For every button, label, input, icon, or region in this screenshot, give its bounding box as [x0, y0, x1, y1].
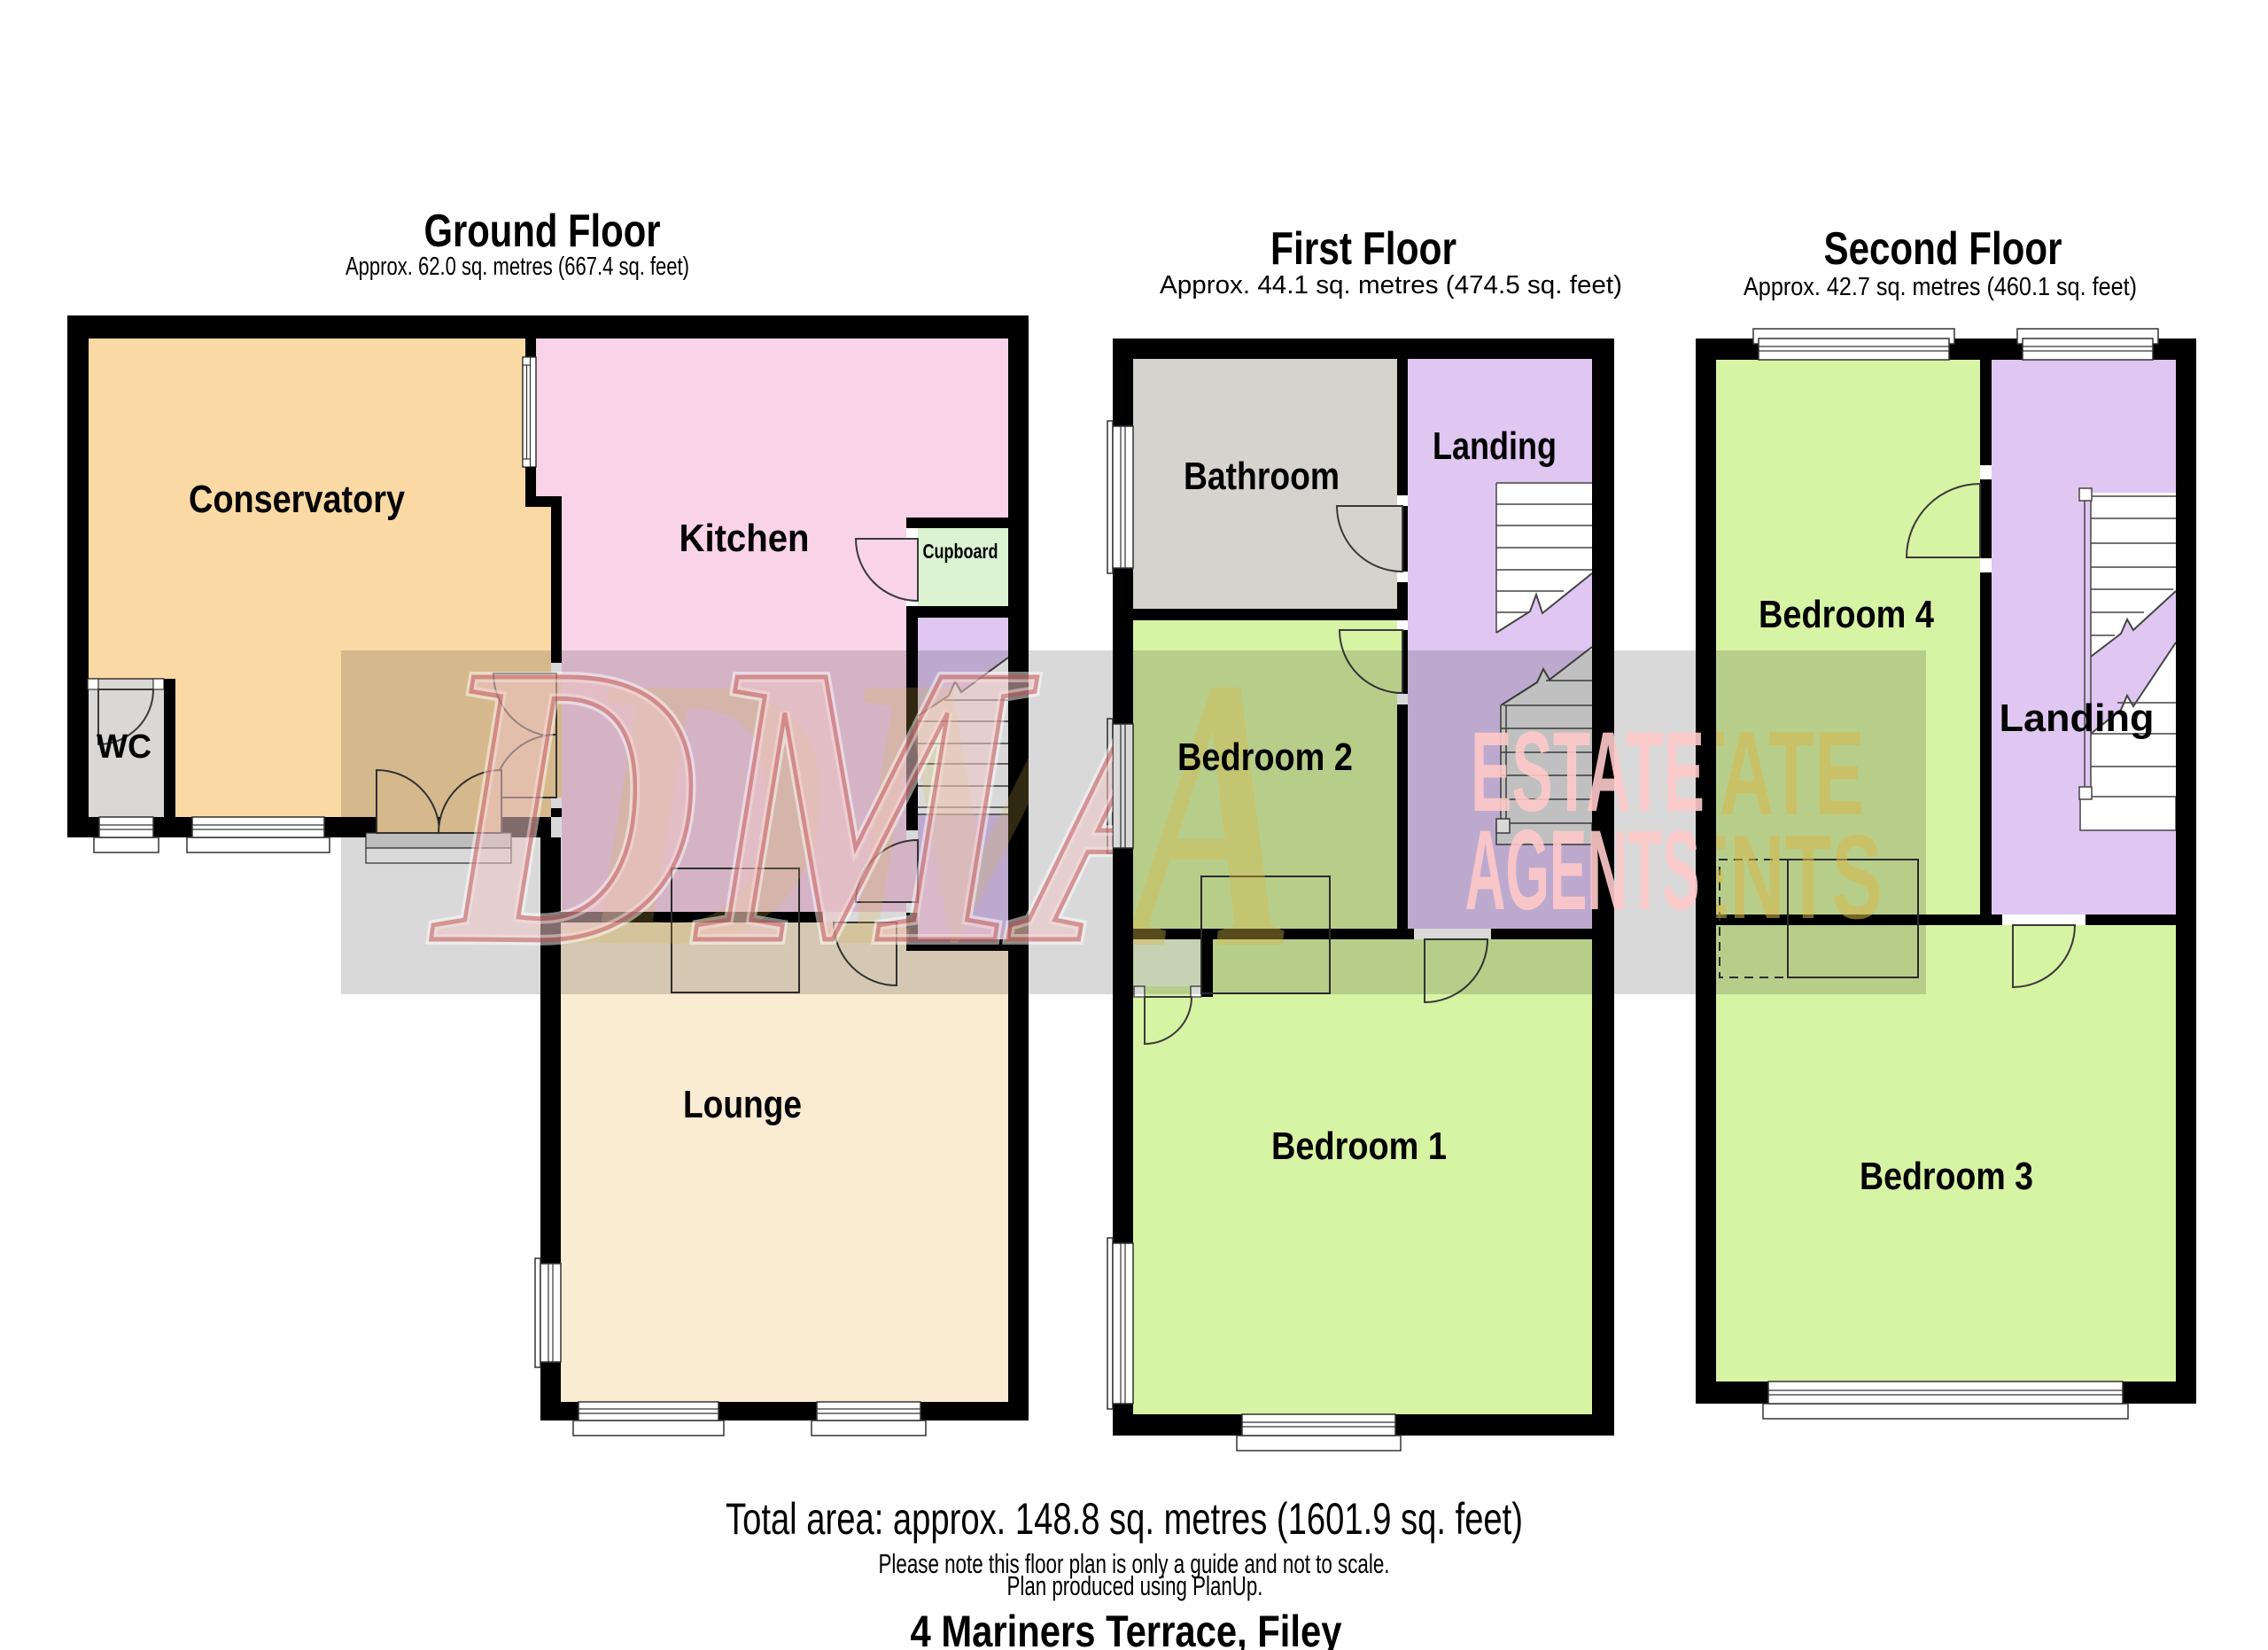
svg-text:Second Floor: Second Floor — [1824, 223, 2062, 275]
svg-text:Cupboard: Cupboard — [923, 540, 998, 563]
svg-text:Bedroom 4: Bedroom 4 — [1759, 593, 1934, 636]
svg-text:Total area: approx. 148.8 sq.: Total area: approx. 148.8 sq. metres (16… — [726, 1494, 1523, 1544]
svg-text:Conservatory: Conservatory — [189, 478, 405, 521]
svg-text:Bedroom 2: Bedroom 2 — [1177, 735, 1353, 779]
svg-text:WC: WC — [97, 728, 151, 766]
svg-text:First Floor: First Floor — [1270, 223, 1456, 275]
svg-text:Kitchen: Kitchen — [680, 517, 810, 560]
svg-text:Landing: Landing — [2000, 697, 2155, 740]
svg-text:Bedroom 1: Bedroom 1 — [1271, 1125, 1447, 1168]
svg-text:Landing: Landing — [1433, 424, 1557, 468]
svg-text:A: A — [1115, 598, 1294, 1030]
svg-text:Lounge: Lounge — [683, 1083, 802, 1126]
svg-text:Approx. 62.0 sq. metres (667.4: Approx. 62.0 sq. metres (667.4 sq. feet) — [346, 253, 689, 281]
svg-text:4 Mariners Terrace, Filey: 4 Mariners Terrace, Filey — [911, 1607, 1342, 1650]
svg-text:Bedroom 3: Bedroom 3 — [1860, 1155, 2033, 1198]
svg-text:Ground Floor: Ground Floor — [424, 206, 661, 257]
svg-text:Bathroom: Bathroom — [1184, 455, 1340, 498]
svg-text:AGENTS: AGENTS — [1465, 807, 1700, 934]
svg-text:Approx. 42.7 sq. metres (460.1: Approx. 42.7 sq. metres (460.1 sq. feet) — [1744, 273, 2137, 301]
svg-text:Approx. 44.1 sq. metres (474.5: Approx. 44.1 sq. metres (474.5 sq. feet) — [1160, 271, 1622, 300]
svg-text:Plan produced using PlanUp.: Plan produced using PlanUp. — [1007, 1570, 1263, 1601]
